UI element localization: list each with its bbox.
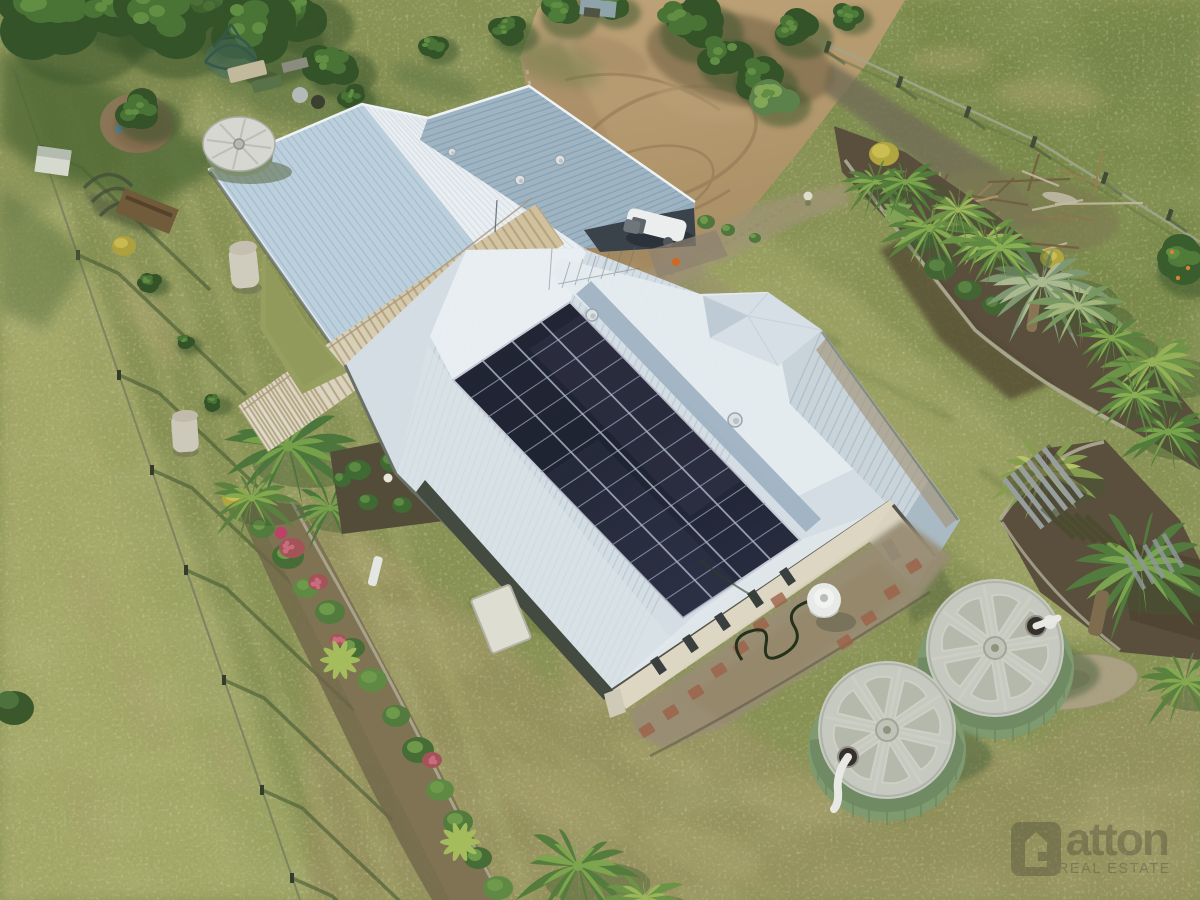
svg-text:REAL ESTATE: REAL ESTATE bbox=[1058, 861, 1171, 877]
svg-text:atton: atton bbox=[1066, 813, 1168, 865]
